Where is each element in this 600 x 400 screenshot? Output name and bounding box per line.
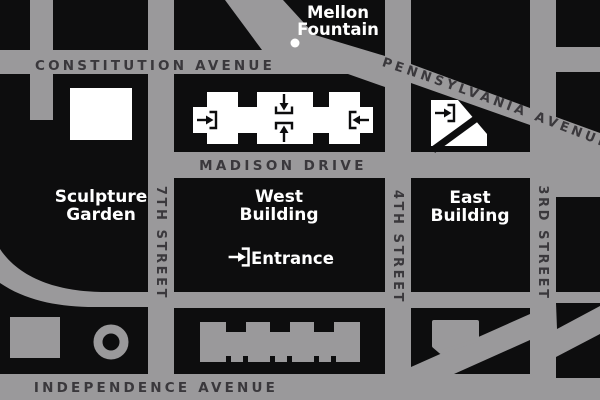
east-building-label-line1: East	[449, 188, 490, 208]
madison-drive-label: MADISON DRIVE	[199, 158, 367, 174]
independence-avenue-label: INDEPENDENCE AVENUE	[34, 380, 278, 396]
sculpture-garden-label-line2: Garden	[66, 205, 136, 225]
map-canvas: CONSTITUTION AVENUE MADISON DRIVE INDEPE…	[0, 0, 600, 400]
third-street-label: 3RD STREET	[535, 185, 550, 300]
east-building-label-line2: Building	[431, 206, 510, 226]
entrance-label: Entrance	[251, 249, 334, 268]
west-building-label-line2: Building	[240, 205, 319, 225]
mellon-fountain-label-line2: Fountain	[297, 20, 379, 39]
west-building-label-line1: West	[255, 187, 303, 207]
fourth-street-label: 4TH STREET	[390, 190, 405, 304]
sculpture-garden-pavilion	[70, 88, 132, 140]
city-block	[0, 0, 30, 50]
notched-building	[200, 322, 360, 362]
street-stub	[30, 74, 53, 120]
square-building	[10, 317, 60, 358]
city-block	[53, 0, 148, 50]
sculpture-garden-label-line1: Sculpture	[55, 187, 148, 207]
city-block	[556, 197, 600, 292]
city-block	[556, 0, 600, 47]
street-map: CONSTITUTION AVENUE MADISON DRIVE INDEPE…	[0, 0, 600, 400]
seventh-street-label: 7TH STREET	[153, 186, 168, 300]
fountain-dot-icon	[291, 39, 300, 48]
constitution-avenue-label: CONSTITUTION AVENUE	[35, 58, 275, 74]
